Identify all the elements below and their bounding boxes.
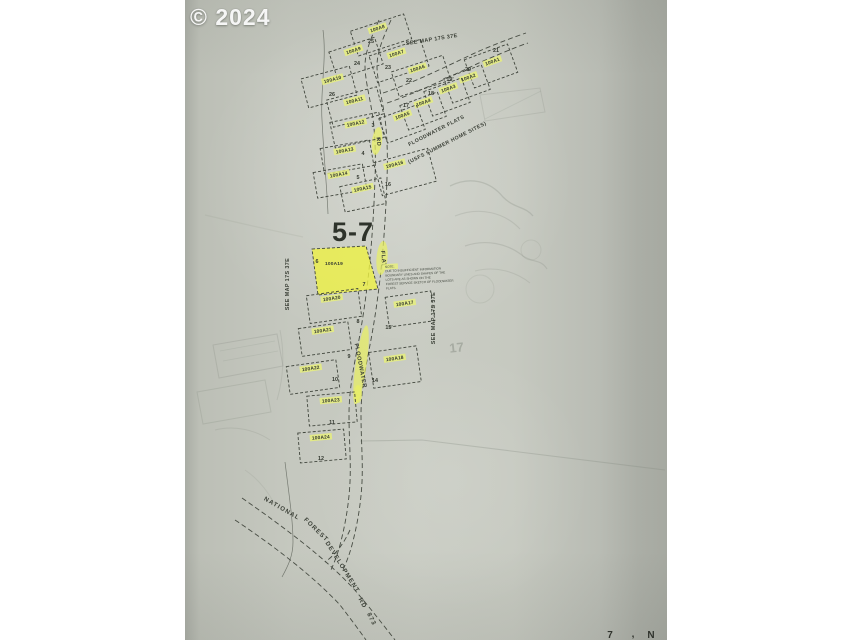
lot-100A24: 100A2412 (298, 429, 346, 463)
map-number: 5-7 (332, 217, 374, 247)
lot-number: 20 (465, 67, 471, 73)
lot-number: 22 (406, 78, 412, 84)
lot-100A1: 100A121 (464, 44, 517, 88)
lot-boundary (464, 44, 517, 88)
lot-number: 12 (318, 456, 324, 462)
lot-100A15: 100A15 (340, 178, 386, 212)
creek-line-top (322, 30, 328, 214)
lot-boundary (385, 291, 435, 327)
lot-number: 16 (385, 182, 391, 188)
note-line: FLATS. (386, 286, 397, 291)
lot-100A19: 100A1967 (312, 246, 378, 295)
lot-100A9: 100A924 (329, 37, 383, 78)
lot-number: 17 (403, 103, 409, 109)
pencil-line (205, 215, 303, 237)
lot-boundary (312, 246, 378, 295)
lot-100A14: 100A145 (313, 164, 367, 198)
see-map-reference: SEE MAP 17S 37E (406, 33, 459, 47)
lot-100A18: 100A1814 (369, 346, 422, 388)
creek-line-bottom (282, 462, 293, 577)
lot-100A17: 100A1715' (385, 291, 435, 331)
lot-number: 23 (385, 65, 391, 71)
lot-100A22: 100A2210 (286, 360, 339, 395)
pencil-circle (521, 240, 541, 260)
pencil-lot-sketch (213, 334, 283, 378)
forest-road-label-word: FOREST (302, 516, 330, 543)
forest-road-label-word: 873 (365, 612, 377, 627)
lot-100A2: 100A220 (444, 65, 490, 103)
forest-road-label-word: RD (357, 597, 368, 610)
subdivision-title: FLOODWATER FLATS (407, 114, 465, 148)
pencil-squiggle (465, 243, 547, 269)
lot-number: 7 (363, 282, 366, 288)
roads-layer (235, 20, 528, 640)
lot-number: 3 (372, 123, 375, 129)
road-name-segment: RD (374, 137, 381, 147)
lot-number: 26 (329, 92, 335, 98)
bottom-edge-mark: N (647, 630, 654, 640)
lot-label: 100A19 (325, 261, 343, 267)
lot-number: 10 (332, 377, 338, 383)
lot-100A23: 100A2311 (307, 392, 357, 426)
forest-road-label-word: NATIONAL (263, 496, 301, 522)
pencil-box-sketch (480, 88, 545, 121)
see-map-reference: SEE MAP 17S 37E (285, 258, 291, 310)
bottom-edge-mark: , (632, 629, 635, 640)
pencil-line (485, 91, 541, 119)
see-map-reference: SEE MAP 17S 37E (431, 292, 437, 344)
copyright-watermark: © 2024 (190, 4, 271, 31)
pencil-squiggle (450, 181, 533, 216)
lot-boundary (340, 178, 386, 212)
lot-number: 11 (329, 420, 335, 426)
lot-100A20: 100A208 (306, 289, 361, 325)
pencil-note-17: 17 (449, 339, 465, 355)
lot-number: 24 (354, 61, 360, 67)
lot-number: 18 (428, 91, 434, 97)
lot-number: 5 (357, 175, 360, 181)
lot-boundary (313, 164, 367, 198)
pencil-long-line (360, 440, 665, 470)
bottom-edge-mark: 7 (607, 630, 613, 640)
lot-100A21: 100A219 (298, 322, 351, 360)
map-annotations: 100A825100A924100A723100A622100A121100A2… (263, 14, 655, 640)
map-note: NOTE:DUE TO INSUFFICIENT INFORMATIONBOUN… (383, 260, 455, 290)
pencil-lot-sketch (197, 380, 271, 424)
pencil-circle (466, 275, 494, 303)
plat-map-photo: 100A825100A924100A723100A622100A121100A2… (185, 0, 667, 640)
lot-boundary (329, 37, 383, 78)
lot-number: 9 (348, 354, 351, 360)
lot-number: 21 (493, 48, 499, 54)
lot-number: 4 (362, 151, 365, 157)
plat-map-drawing: 100A825100A924100A723100A622100A121100A2… (185, 0, 667, 640)
forest-road-label-word: DEVELOPMENT (324, 540, 361, 594)
lot-boundary (320, 140, 374, 174)
pencil-squiggle (455, 211, 520, 229)
pencil-squiggle (475, 269, 530, 283)
page-background: 100A825100A924100A723100A622100A121100A2… (0, 0, 853, 640)
lot-number: 6 (316, 259, 319, 265)
lot-number: 8 (357, 319, 360, 325)
lot-100A13: 100A134 (320, 140, 374, 174)
lot-number: 19' (446, 77, 453, 83)
pencil-squiggle (215, 428, 270, 440)
lot-number: 14 (372, 378, 378, 384)
pencil-hatch (220, 341, 278, 361)
lot-number: 15' (385, 325, 392, 331)
lot-number: 25 (368, 39, 374, 45)
branch-road-lower-edge (387, 43, 528, 103)
